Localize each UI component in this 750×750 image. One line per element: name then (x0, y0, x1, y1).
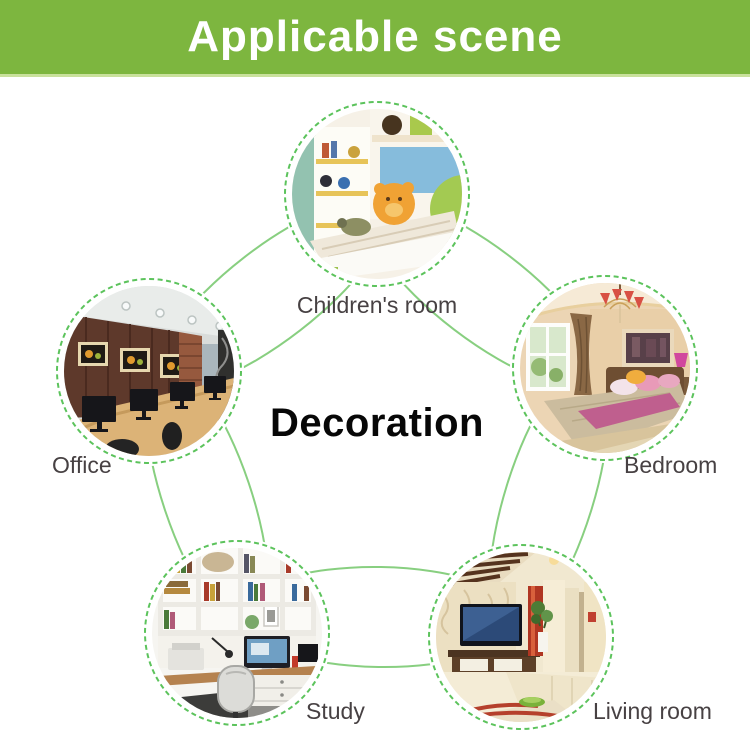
office-illustration (64, 286, 234, 456)
bedroom-label: Bedroom (624, 453, 717, 478)
living-room-photo (436, 552, 606, 722)
applicable-scene-infographic: Applicable scene (0, 0, 750, 750)
scene-circle-bedroom (510, 273, 700, 463)
children-room-photo (292, 109, 462, 279)
living-room-illustration (436, 552, 606, 722)
children-room-illustration (292, 109, 462, 279)
study-photo (152, 548, 322, 718)
study-label: Study (306, 699, 365, 724)
center-label: Decoration (252, 401, 502, 446)
scene-circle-office (54, 276, 244, 466)
living-room-label: Living room (593, 699, 712, 724)
children-room-label: Children's room (277, 293, 477, 318)
office-photo (64, 286, 234, 456)
scene-circle-study (142, 538, 332, 728)
scene-circle-living-room (426, 542, 616, 732)
study-illustration (152, 548, 322, 718)
office-label: Office (52, 453, 112, 478)
bedroom-illustration (520, 283, 690, 453)
scene-circle-children-room (282, 99, 472, 289)
bedroom-photo (520, 283, 690, 453)
